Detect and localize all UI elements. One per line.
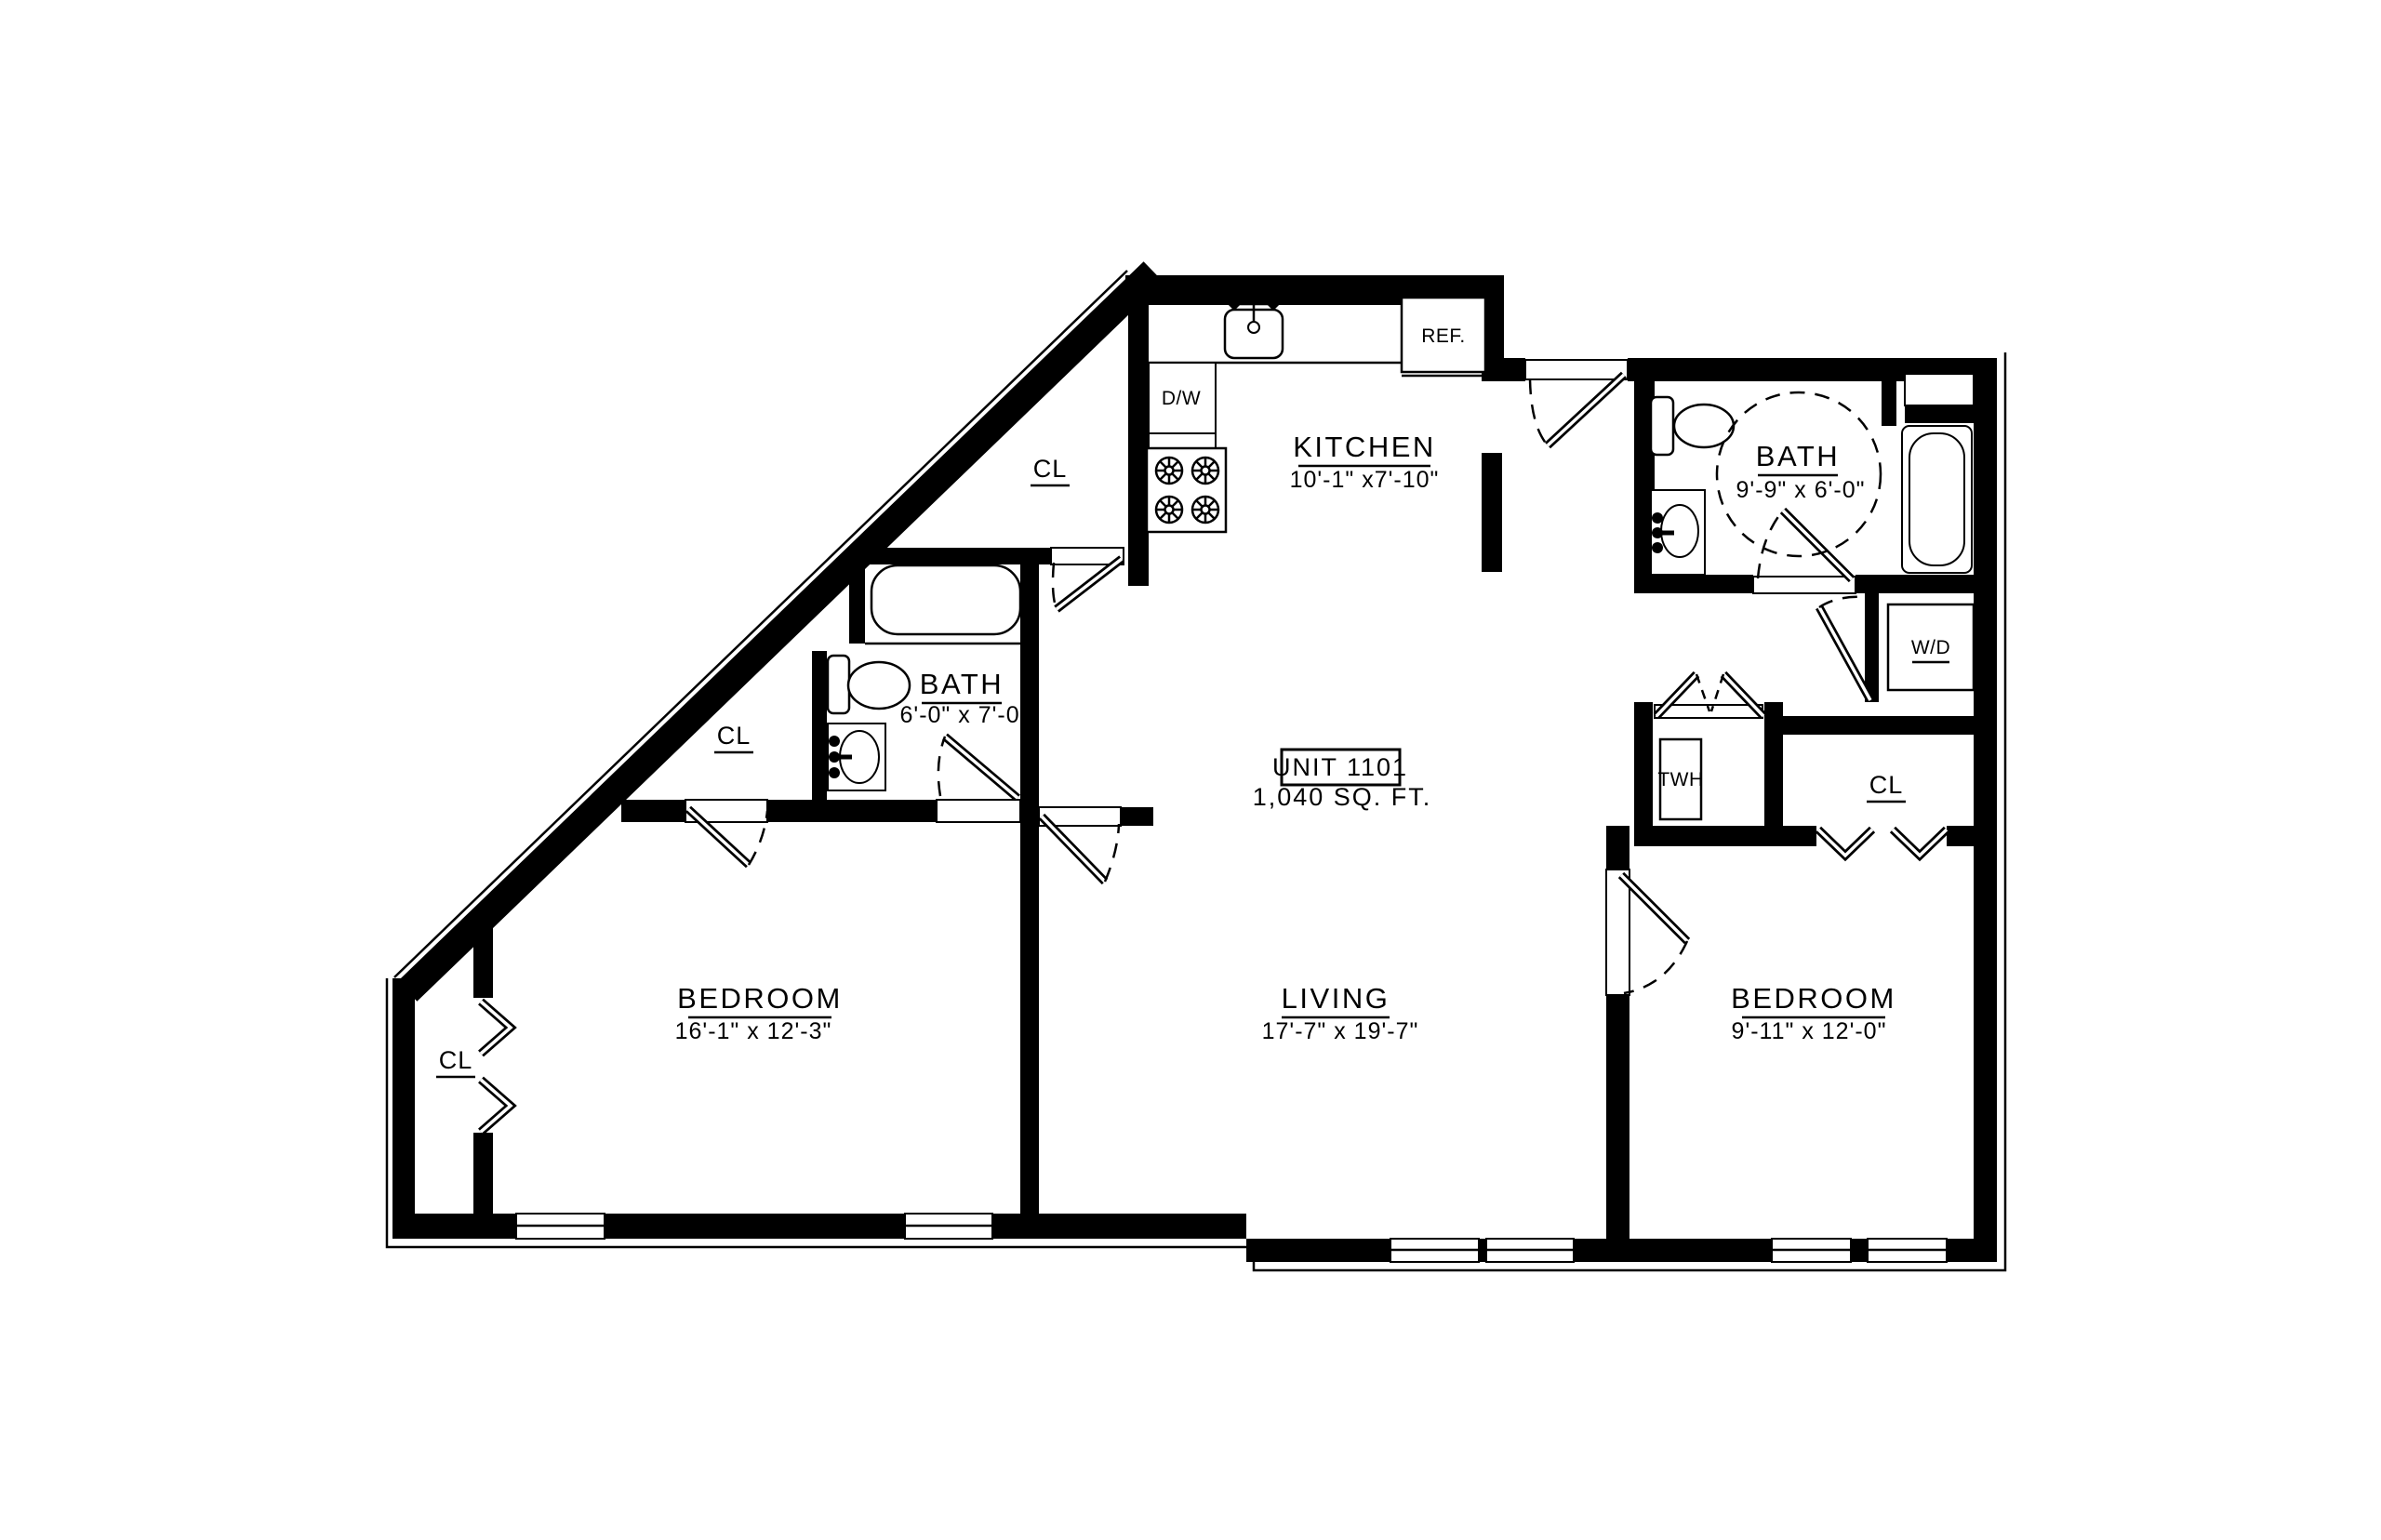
closet-kitchen-label: CL [1033,455,1068,483]
dishwasher-label: D/W [1162,388,1201,409]
unit-title: UNIT 1101 1,040 SQ. FT. [1253,750,1432,811]
wall-bath-right-south-b [1856,575,1974,593]
washer-dryer-label: W/D [1911,637,1950,658]
wall-kitchen-west [1128,305,1149,586]
wall-twh-west [1634,702,1653,826]
unit-area: 1,040 SQ. FT. [1253,783,1432,811]
wall-bedroom-right-west-lower [1606,995,1629,1239]
bathtub-icon [871,565,1020,634]
entry-door [1530,375,1624,445]
stove-icon [1147,448,1226,532]
window [1868,1239,1947,1262]
bathroom-sink-icon [1651,490,1705,575]
kitchen-dims: 10'-1" x7'-10" [1290,467,1440,493]
floor-plan-svg: KITCHEN 10'-1" x7'-10" BATH 9'-9" x 6'-0… [0,0,2381,1540]
bath-left-dims: 6'-0" x 7'-0" [900,702,1030,728]
closet-kitchen-door [1053,559,1122,609]
wall-left [392,978,415,1239]
wall-tub-alcove-west [849,551,865,644]
bedroom-left-dims: 16'-1" x 12'-3" [675,1018,832,1044]
closet-left-bifold [481,1002,511,1132]
living-dims: 17'-7" x 19'-7" [1262,1018,1419,1044]
bath-right-dims: 9'-9" x 6'-0" [1736,477,1866,503]
kitchen-sink-icon [1225,298,1283,358]
wall-closet-left-partition-lower [473,1133,493,1214]
bath-right-door-sill [1753,577,1856,593]
bedroom-right-label: BEDROOM [1731,982,1896,1015]
bedroom-right-door-sill [1606,870,1629,995]
water-heater-label: TWH [1657,769,1703,790]
window [1390,1239,1479,1262]
living-label: LIVING [1282,982,1390,1015]
entry-door-sill [1525,360,1628,379]
bedroom-right-door [1621,875,1687,993]
window [516,1214,605,1239]
wall-bedroom-left-north-b [767,800,937,822]
bath-left-door [938,737,1018,798]
wall-bedroom-left-north-a [621,800,685,822]
kitchen-label: KITCHEN [1293,431,1436,463]
refrigerator-label: REF. [1421,325,1466,347]
bath-right-niche [1905,374,1974,405]
wall-right [1974,358,1997,1262]
wall-closet-right-north [1783,716,1974,735]
bath-left-label: BATH [920,668,1004,700]
wall-kitchen-east-stub [1482,453,1502,572]
bathtub-icon [1902,426,1972,573]
window [905,1214,992,1239]
bathroom-sink-icon [828,724,885,790]
window [1486,1239,1574,1262]
bath-right-label: BATH [1756,440,1840,472]
wall-bottom-right [1246,1239,1974,1262]
wall-twh-east [1764,702,1783,826]
wall-bedroom-right-north-a [1634,826,1816,846]
closet-right-label: CL [1869,771,1904,799]
wall-closet-hall-east [812,651,827,800]
wall-top-entry-left [1504,358,1525,381]
wd-door [1819,597,1870,700]
bedroom-left-label: BEDROOM [677,982,843,1015]
closet-right-bifold [1818,830,1947,856]
wall-hall-south-stub [1121,807,1153,826]
wall-bath-right-south-a [1634,575,1753,593]
wall-tub-nook-stub [1882,370,1896,426]
bath-left-door-sill [937,800,1020,822]
interior-walls [473,305,1974,1239]
floor-plan-page: KITCHEN 10'-1" x7'-10" BATH 9'-9" x 6'-0… [0,0,2381,1540]
unit-number: UNIT 1101 [1272,753,1408,781]
closet-left-label: CL [439,1046,473,1074]
wall-closet-left-partition-upper [473,923,493,998]
wall-bedroom-right-north-b [1947,826,1974,846]
bath-right-niche-ledge [1905,405,1974,423]
wall-diagonal [407,272,1153,991]
window [1772,1239,1851,1262]
wall-bedroom-right-west-upper [1606,826,1629,870]
wall-bath-left-east [1020,558,1039,1214]
bedroom-right-dims: 9'-11" x 12'-0" [1732,1018,1887,1044]
toilet-icon [828,656,910,713]
closet-hall-label: CL [717,722,752,750]
